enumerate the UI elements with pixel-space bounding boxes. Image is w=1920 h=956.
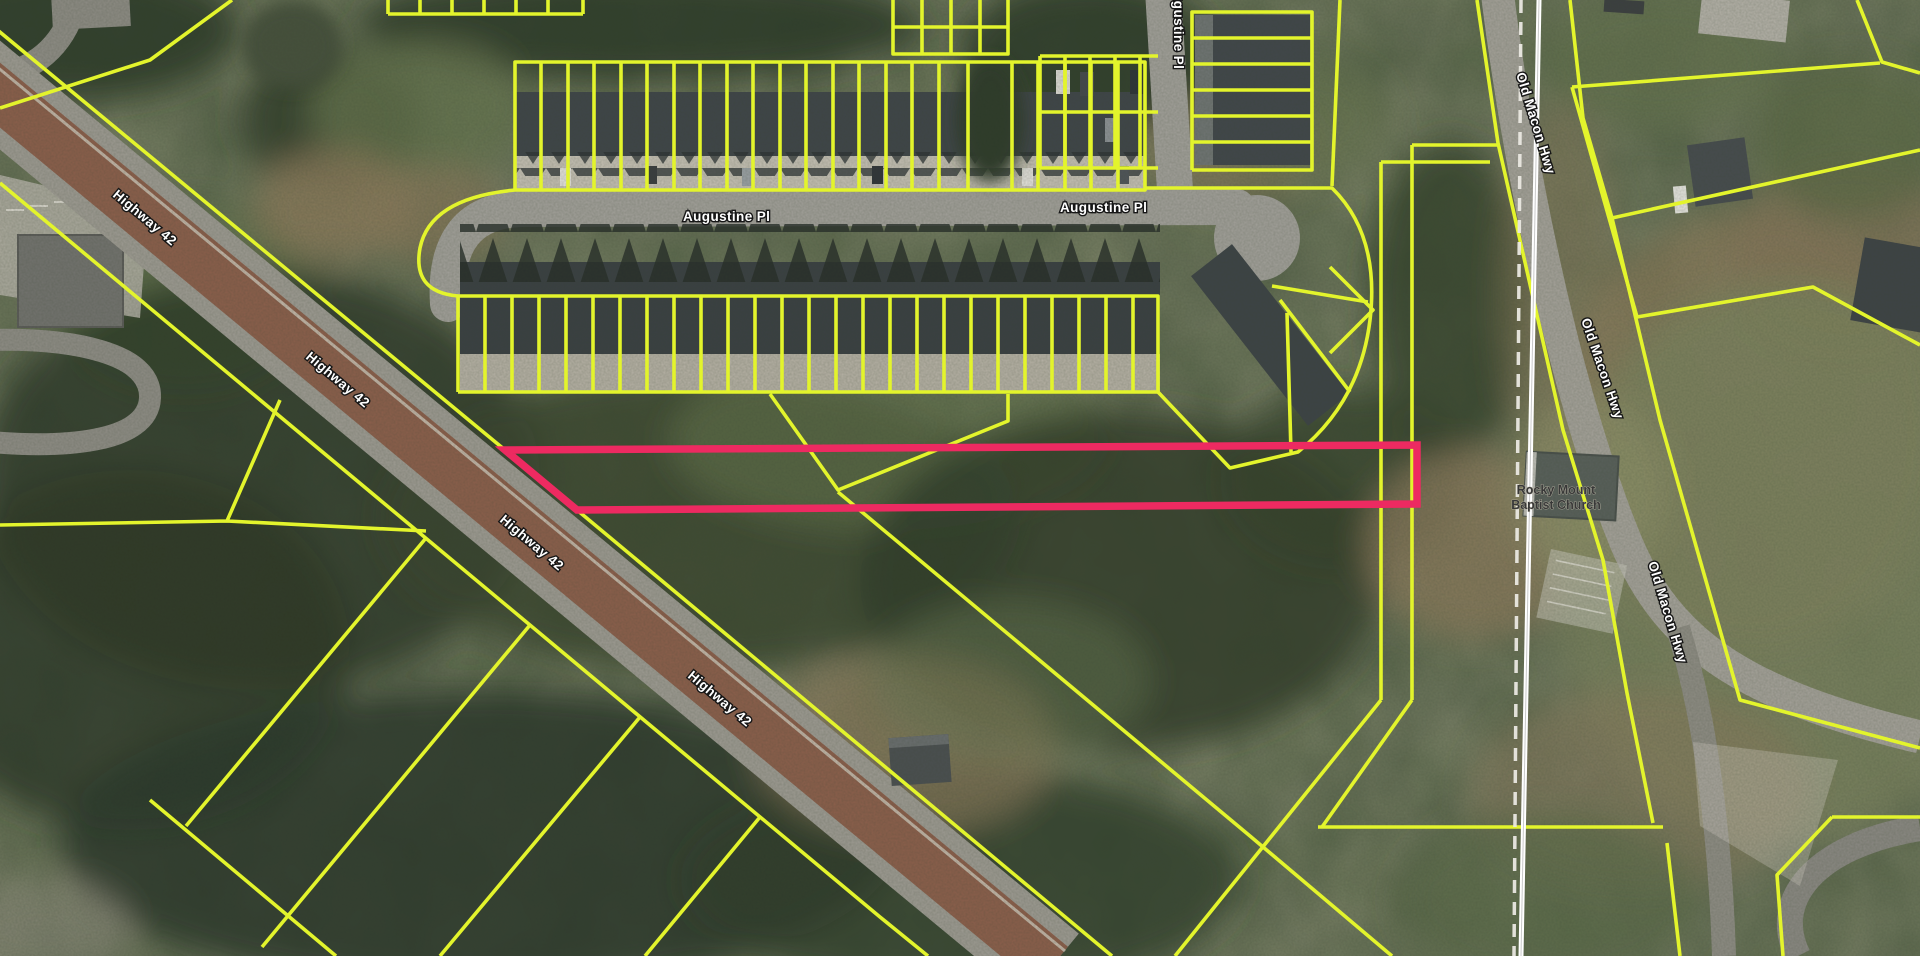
road-label-augustine-vertical: Augustine Pl [1171,0,1186,69]
buildings-layer [0,0,1920,956]
road-label-augustine-2: Augustine Pl [1060,200,1147,215]
map-canvas[interactable]: Highway 42 Highway 42 Highway 42 Highway… [0,0,1920,956]
poi-label-church: Rocky Mount Baptist Church [1511,483,1601,512]
canopy-grain-texture [0,0,1920,956]
poi-label-church-line1: Rocky Mount [1517,483,1596,497]
map-viewport[interactable]: Highway 42 Highway 42 Highway 42 Highway… [0,0,1920,956]
road-label-augustine-1: Augustine Pl [683,209,770,224]
poi-label-church-line2: Baptist Church [1511,498,1601,512]
